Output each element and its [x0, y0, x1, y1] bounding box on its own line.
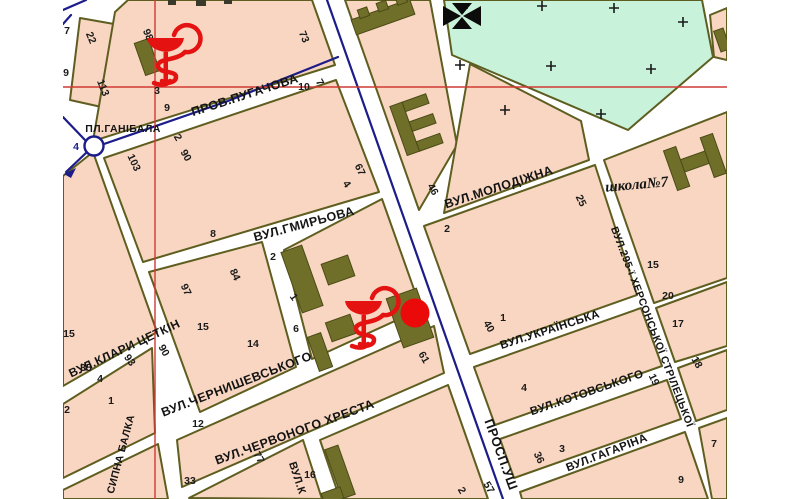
map-edge-fragment — [196, 0, 206, 6]
house-number: 4 — [73, 141, 79, 153]
house-number: 9 — [164, 102, 170, 114]
road-spoke — [63, 0, 86, 10]
map-canvas: ПРОВ.ПУГАЧОВА ПЛ.ГАНІБАЛА ВУЛ.ГМИРЬОВА В… — [0, 0, 800, 499]
house-number: 3 — [154, 85, 160, 97]
road-spoke — [63, 15, 71, 24]
house-number: 2 — [270, 251, 276, 263]
house-number: 15 — [647, 259, 659, 271]
roundabout-circle — [85, 137, 104, 156]
house-number: 7 — [64, 25, 70, 37]
house-number: 7 — [711, 438, 717, 450]
house-number: 8 — [210, 228, 216, 240]
house-number: 20 — [662, 290, 674, 302]
house-number: 15 — [197, 321, 209, 333]
house-number: 2 — [64, 404, 70, 416]
house-number: 12 — [192, 418, 204, 430]
house-number: 33 — [184, 475, 196, 487]
house-number: 9 — [678, 474, 684, 486]
house-number: 10 — [298, 81, 310, 93]
house-number: 16 — [304, 469, 316, 481]
house-number: 3 — [559, 443, 565, 455]
house-number: 17 — [672, 318, 684, 330]
house-number: 35 — [80, 362, 92, 374]
house-number: 90 — [155, 342, 171, 358]
square-label: ПЛ.ГАНІБАЛА — [85, 123, 160, 135]
house-number: 4 — [97, 373, 103, 385]
red-dot-marker — [401, 299, 430, 328]
house-number: 4 — [521, 382, 527, 394]
house-number: 9 — [63, 67, 69, 79]
road-spoke — [63, 117, 85, 140]
house-number: 1 — [108, 395, 114, 407]
map-edge-fragment — [224, 0, 232, 4]
house-number: 1 — [500, 312, 506, 324]
house-number: 6 — [293, 323, 299, 335]
house-number: 15 — [63, 328, 75, 340]
map-edge-fragment — [168, 0, 176, 5]
house-number: 2 — [444, 223, 450, 235]
city-map: ПРОВ.ПУГАЧОВА ПЛ.ГАНІБАЛА ВУЛ.ГМИРЬОВА В… — [0, 0, 800, 499]
house-number: 14 — [247, 338, 259, 350]
